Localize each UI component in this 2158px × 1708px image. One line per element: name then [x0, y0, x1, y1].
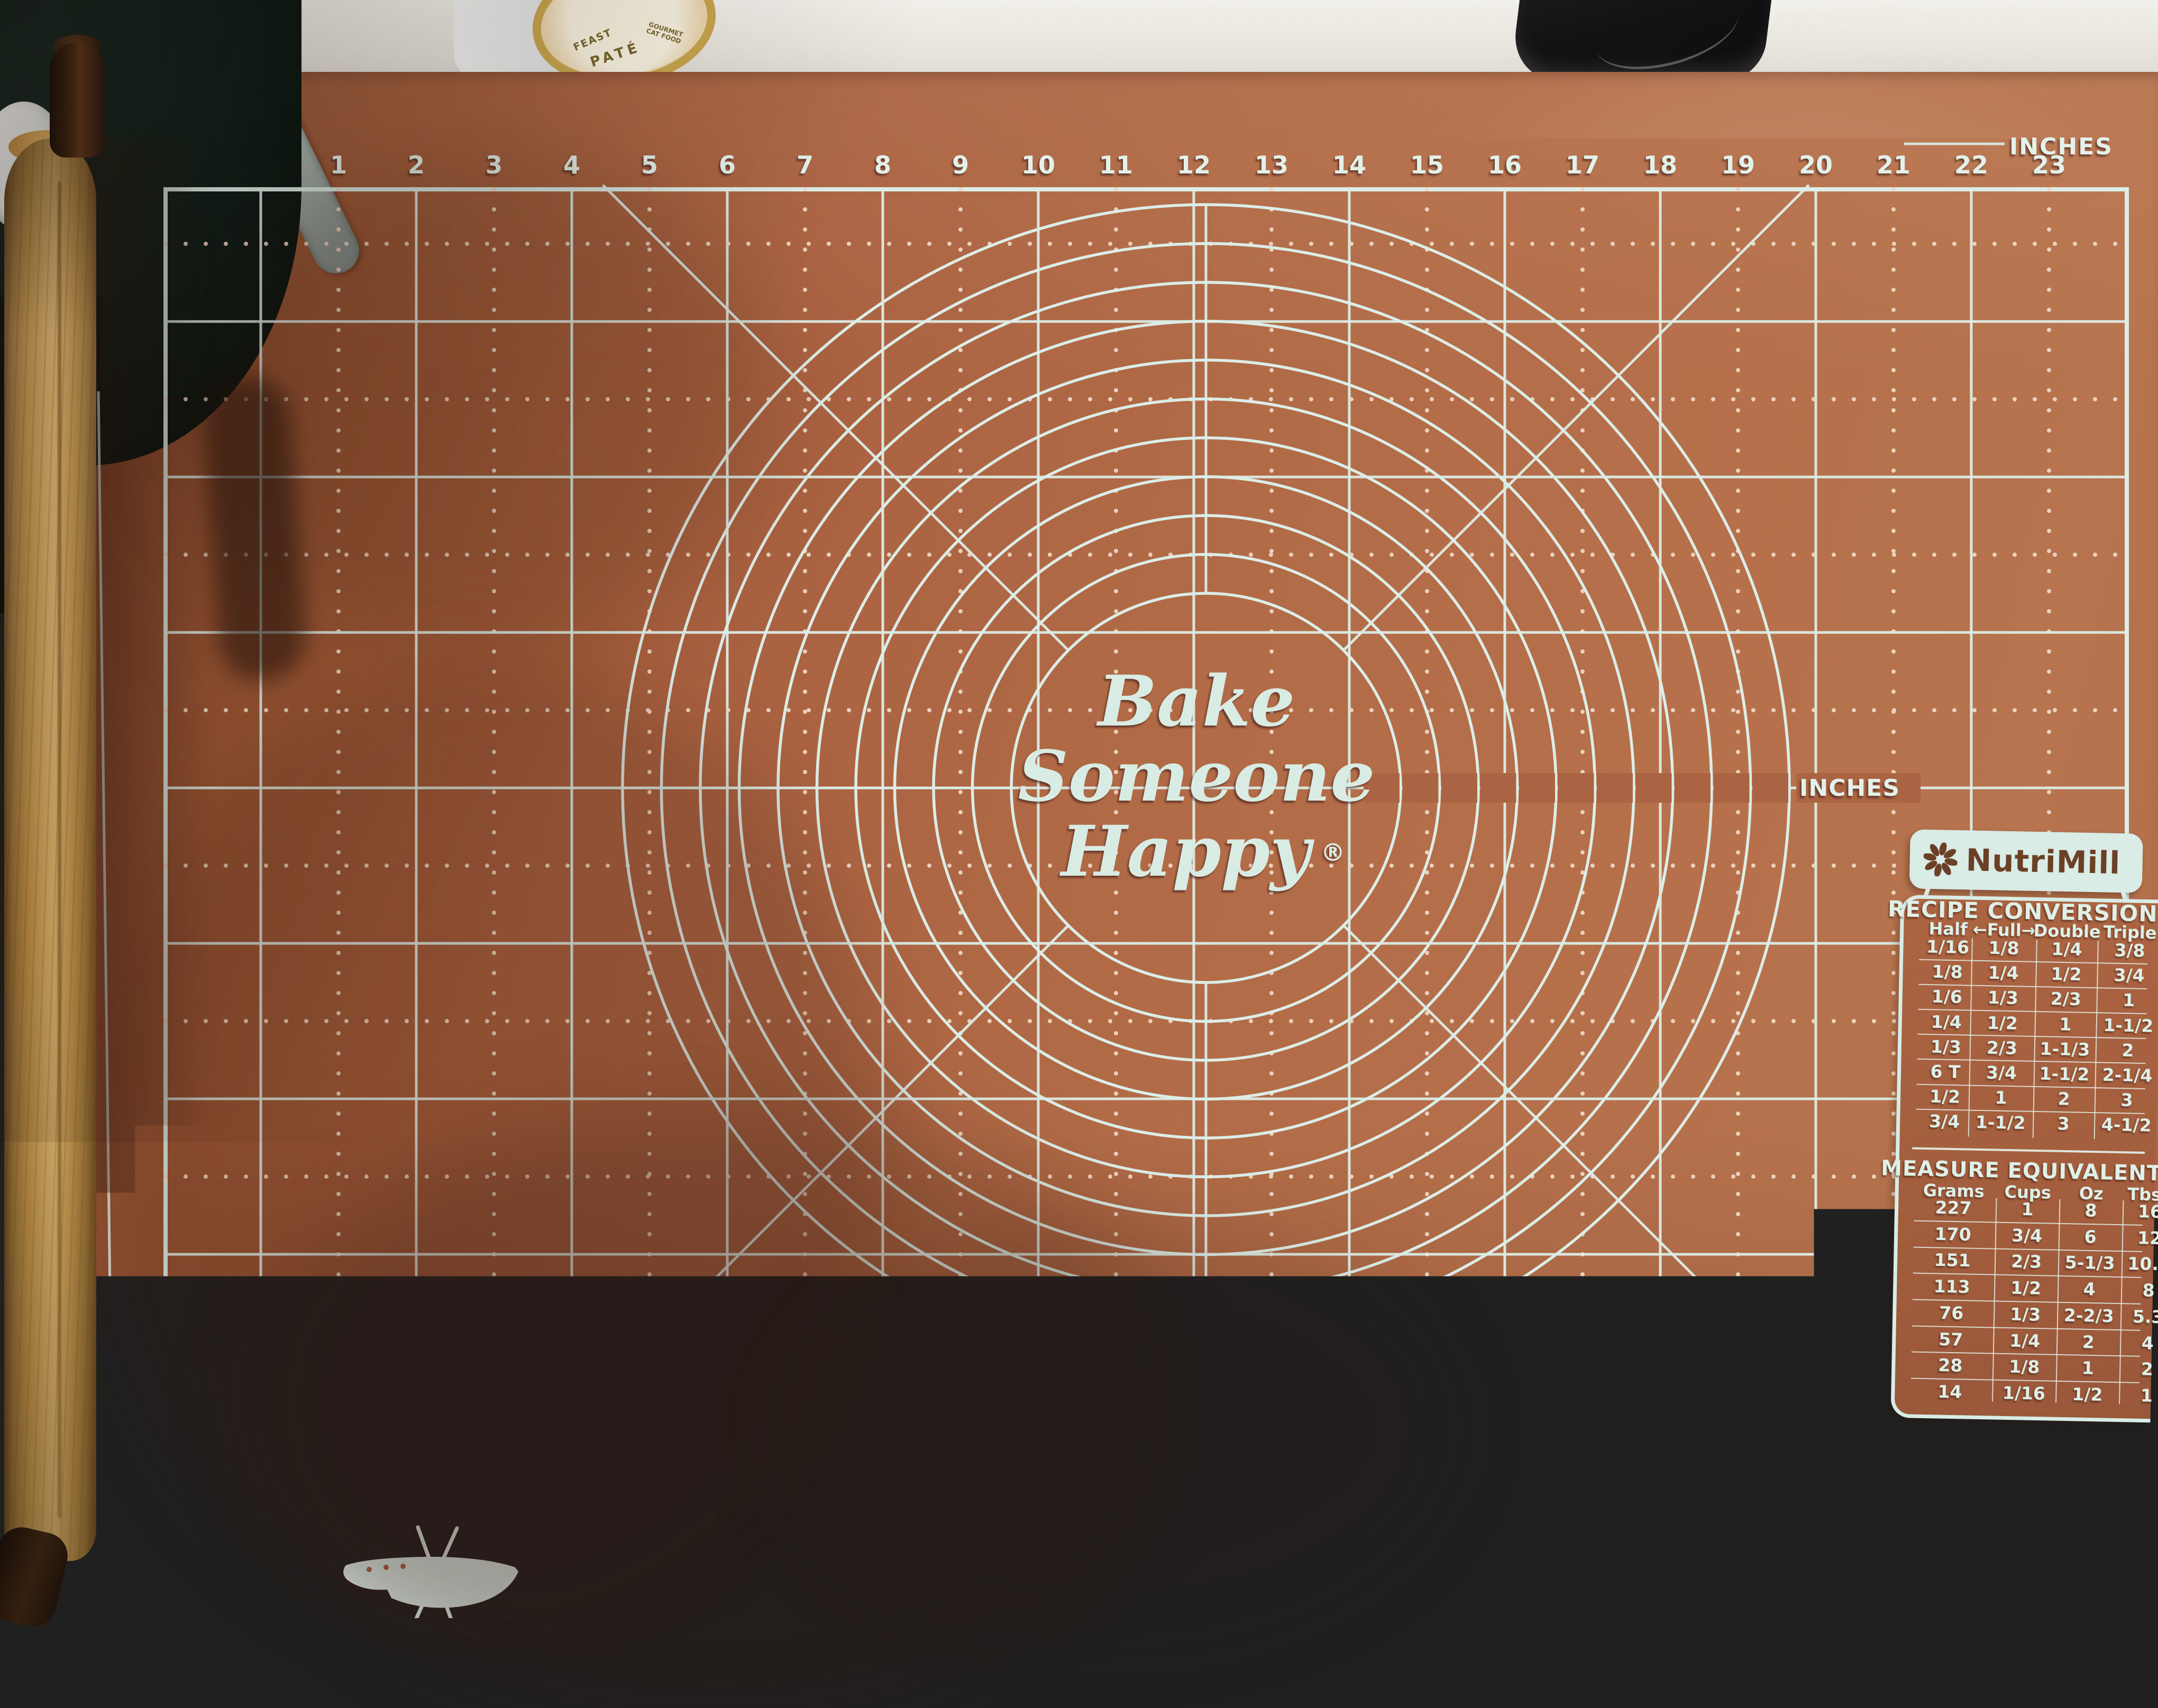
circle-diameter-number: 7	[1451, 775, 1468, 802]
top-ruler-number: 11	[1099, 151, 1133, 179]
bottom-ruler-number: 27	[1049, 1526, 1080, 1552]
me-cell: 1	[2141, 1385, 2153, 1406]
top-ruler-number: 17	[1566, 151, 1599, 179]
rc-cell: 1/2	[1987, 1012, 2018, 1033]
top-ruler-number: 23	[2032, 151, 2066, 179]
rc-cell: 2/3	[2050, 988, 2081, 1009]
me-cell: 8	[2142, 1280, 2155, 1300]
bottom-ruler-number: 37	[1401, 1526, 1431, 1552]
bottom-ruler-number: 40	[1506, 1526, 1537, 1552]
top-ruler-number: 3	[486, 151, 502, 179]
rc-cell: 1/4	[2051, 939, 2082, 960]
rc-column-divider	[2094, 941, 2099, 1139]
me-cell: 1	[2081, 1357, 2094, 1378]
me-cell: 151	[1934, 1250, 1971, 1271]
rc-cell: 1	[2123, 990, 2135, 1011]
top-ruler-number: 19	[1721, 151, 1755, 179]
rc-cell: 6 T	[1930, 1061, 1961, 1082]
bottom-ruler-number: 55	[2034, 1526, 2064, 1552]
me-cell: 57	[1938, 1329, 1963, 1350]
bottom-ruler-number: 23	[908, 1526, 939, 1552]
circle-diameter-number: 13	[1676, 775, 1708, 802]
bottom-ruler-number: 4	[248, 1526, 263, 1552]
bottom-ruler-number: 57	[2104, 1526, 2135, 1552]
bottom-ruler-number: 30	[1154, 1526, 1185, 1552]
me-cell: 1/3	[2010, 1303, 2041, 1325]
bottom-ruler-number: 9	[423, 1526, 438, 1552]
bottom-ruler-number: 56	[2069, 1526, 2099, 1552]
right-ruler-number: 1	[2141, 227, 2157, 254]
rc-cell: 1/3	[1987, 987, 2018, 1008]
circle-spoke	[603, 185, 1068, 650]
nutrimill-flower-icon	[1923, 842, 1958, 877]
me-cell: 4	[2083, 1279, 2096, 1299]
mat-slogan-line3: Happy	[1059, 811, 1315, 893]
wood-grain	[4, 139, 96, 1561]
bottom-ruler-number: 50	[1858, 1526, 1888, 1552]
top-ruler-number: 16	[1488, 151, 1522, 179]
circle-diameter-number: 8	[1490, 775, 1506, 802]
me-cell: 8	[2084, 1200, 2097, 1220]
rc-cell: 2/3	[1987, 1037, 2018, 1058]
rc-cell: 1/16	[1926, 936, 1970, 958]
bottom-ruler-number: 48	[1787, 1526, 1818, 1552]
bottom-ruler-number: 8	[388, 1526, 404, 1552]
top-ruler-number: 8	[874, 151, 891, 179]
bottom-ruler-number: 21	[838, 1526, 868, 1552]
rolling-pin-handle	[50, 42, 105, 158]
rc-cell: 1/4	[1988, 962, 2019, 984]
me-cell: 5-1/3	[2064, 1252, 2115, 1274]
me-cell: 2	[2082, 1331, 2095, 1352]
me-cell: 14	[1937, 1381, 1962, 1402]
rc-cell: 1	[2059, 1014, 2072, 1034]
bottom-ruler-number: 52	[1928, 1526, 1959, 1552]
me-cell: 4	[2141, 1333, 2154, 1353]
bottom-ruler-number: 43	[1612, 1526, 1642, 1552]
top-ruler-number: 21	[1877, 151, 1910, 179]
rolling-pin-shadow	[90, 140, 204, 1552]
rc-cell: 1/3	[1931, 1036, 1962, 1057]
me-cell: 2/3	[2011, 1251, 2042, 1272]
me-cell: 1/2	[2010, 1278, 2042, 1299]
bottom-ruler-number: 51	[1893, 1526, 1924, 1552]
top-ruler-number: 9	[952, 151, 969, 179]
rc-cell: 3/8	[2114, 940, 2145, 961]
bottom-ruler-number: 41	[1541, 1526, 1572, 1552]
top-ruler-number: 5	[641, 151, 658, 179]
bottom-ruler-number: 53	[1963, 1526, 1994, 1552]
circle-spoke	[603, 925, 1068, 1391]
me-cell: 2-2/3	[2064, 1305, 2114, 1326]
me-cell: 170	[1934, 1224, 1971, 1245]
bottom-ruler-number: 11	[486, 1526, 517, 1552]
bottom-ruler-number: 28	[1084, 1526, 1114, 1552]
rolling-pin-barrel	[4, 139, 96, 1561]
right-ruler-number: 2	[2141, 301, 2157, 328]
bottom-ruler-number: 19	[767, 1526, 798, 1552]
top-ruler-number: 4	[563, 151, 580, 179]
top-ruler-number: 12	[1177, 151, 1211, 179]
rc-cell: 1-1/2	[1976, 1112, 2026, 1134]
rc-cell: 1/2	[1930, 1086, 1961, 1107]
bottom-ruler-number: 22	[873, 1526, 903, 1552]
me-cell: 113	[1933, 1276, 1970, 1297]
me-cell: 1/2	[2072, 1384, 2103, 1405]
rc-cell: 3/4	[1986, 1062, 2017, 1083]
circle-spoke	[1343, 925, 1809, 1391]
circle-diameter-number: 14	[1715, 775, 1748, 802]
nutrimill-brand: NutriMill	[1965, 830, 2122, 893]
me-cell: 6	[2084, 1226, 2097, 1247]
top-ruler-number: 1	[330, 151, 347, 179]
rc-cell: 3	[2057, 1114, 2070, 1134]
bottom-ruler-number: 7	[353, 1526, 368, 1552]
me-cell: 28	[1938, 1355, 1963, 1376]
top-ruler-number: 7	[797, 151, 813, 179]
mat-print: Bake Someone Happy ® INCHES CENTIMETERS …	[0, 0, 2158, 1618]
conversions-panel: RECIPE CONVERSIONS MEASURE EQUIVALENTS H…	[1890, 895, 2158, 1422]
rc-cell: 1/2	[2051, 963, 2082, 985]
rc-cell: 3/4	[2114, 965, 2145, 986]
rc-column-divider	[1968, 939, 1973, 1137]
rc-cell: 3/4	[1929, 1111, 1960, 1132]
bottom-ruler-number: 35	[1330, 1526, 1361, 1552]
rc-cell: 1-1/3	[2040, 1038, 2090, 1060]
circle-diameter-number: 9	[1529, 775, 1546, 802]
section-divider	[1912, 1147, 2145, 1153]
mat-labels: Bake Someone Happy ® INCHES CENTIMETERS …	[50, 133, 2157, 1618]
me-column-divider	[1992, 1198, 1997, 1402]
me-cell: 1/8	[2009, 1356, 2040, 1378]
rc-cell: 1-1/2	[2039, 1063, 2089, 1085]
rc-cell: 2	[2122, 1040, 2134, 1060]
circle-diameter-number: 11	[1598, 775, 1631, 802]
circle-diameter-number: 12	[1638, 775, 1670, 802]
me-cell: 76	[1939, 1302, 1964, 1324]
mat-slogan-line1: Bake	[1096, 660, 1295, 742]
me-cell: 1	[2021, 1199, 2034, 1219]
bottom-ruler-number: 25	[979, 1526, 1009, 1552]
bottom-ruler-number: 44	[1647, 1526, 1677, 1552]
bottom-ruler-number: 24	[943, 1526, 974, 1552]
bottom-ruler-number: 18	[732, 1526, 763, 1552]
bottom-ruler-number: 10	[451, 1526, 481, 1552]
top-ruler-number: 15	[1410, 151, 1444, 179]
circle-diameter-number: 5	[1374, 775, 1390, 802]
bottom-ruler-number: 26	[1013, 1526, 1044, 1552]
me-cell: 1/16	[2002, 1382, 2046, 1404]
bottom-ruler-number: 5	[282, 1526, 298, 1552]
top-ruler-number: 6	[719, 151, 736, 179]
top-ruler-number: 20	[1799, 151, 1833, 179]
bottom-ruler-number: 31	[1190, 1526, 1220, 1552]
mat-slogan-line2: Someone	[1018, 736, 1375, 818]
bottom-ruler-number: 32	[1224, 1526, 1255, 1552]
bottom-ruler-number: 29	[1119, 1526, 1150, 1552]
bottom-ruler-number: 14	[591, 1526, 622, 1552]
top-ruler-number: 22	[1954, 151, 1988, 179]
bottom-ruler-number: 54	[1998, 1526, 2029, 1552]
bottom-ruler-number: 15	[627, 1526, 657, 1552]
bottom-ruler-number: 16	[662, 1526, 692, 1552]
me-cell: 5.3	[2133, 1306, 2158, 1327]
rc-cell: 1/4	[1931, 1011, 1962, 1032]
bottom-ruler-number: 17	[697, 1526, 728, 1552]
me-cell: 1/4	[2009, 1330, 2041, 1351]
me-cell: 2	[2141, 1359, 2153, 1380]
bottom-ruler-number: 45	[1682, 1526, 1713, 1552]
circle-diameter-number: 10	[1560, 775, 1592, 802]
rc-cell: 4-1/2	[2101, 1114, 2151, 1136]
circle-inches-label: INCHES	[1799, 775, 1900, 802]
bottom-ruler-number: 33	[1260, 1526, 1291, 1552]
rc-cell: 1	[1995, 1087, 2007, 1108]
me-cell: 3/4	[2011, 1225, 2043, 1246]
bottom-ruler-number: 3	[212, 1526, 227, 1552]
me-cell: 16	[2138, 1201, 2158, 1222]
rc-cell: 2	[2058, 1088, 2070, 1109]
bottom-ruler-number: 6	[318, 1526, 333, 1552]
circle-diameter-number: 15	[1754, 775, 1786, 802]
bottom-ruler-number: 20	[802, 1526, 833, 1552]
bottom-ruler-number: 42	[1576, 1526, 1607, 1552]
top-ruler-number: 13	[1255, 151, 1288, 179]
rc-cell: 2-1/4	[2102, 1064, 2152, 1086]
circle-spoke	[1343, 185, 1809, 650]
top-ruler-number: 14	[1332, 151, 1366, 179]
bottom-ruler-number: 36	[1365, 1526, 1396, 1552]
rc-cell: 1/8	[1988, 938, 2019, 959]
bottom-ruler-number: 47	[1752, 1526, 1783, 1552]
me-cell: 12	[2137, 1227, 2158, 1248]
bottom-ruler-number: 38	[1435, 1526, 1466, 1552]
rc-column-divider	[2033, 940, 2037, 1138]
me-cell: 10.6	[2127, 1253, 2158, 1275]
nutrimill-panel: NutriMill RECIPE CONVERSIONS MEASURE EQU…	[1890, 825, 2158, 1432]
wood-grain-streak	[58, 181, 61, 1519]
bottom-ruler-number: 49	[1823, 1526, 1853, 1552]
me-cell: 227	[1935, 1197, 1972, 1218]
bottom-ruler-number: 46	[1717, 1526, 1748, 1552]
registered-mark: ®	[1321, 838, 1345, 867]
top-ruler-number: 18	[1643, 151, 1677, 179]
me-column-divider	[2119, 1200, 2124, 1404]
circle-diameter-number: 6	[1412, 775, 1429, 802]
rc-cell: 1/8	[1932, 961, 1963, 982]
nutrimill-badge: NutriMill	[1909, 829, 2143, 893]
rc-cell: 1-1/2	[2103, 1014, 2153, 1036]
me-column-divider	[2055, 1199, 2060, 1403]
rc-cell: 3	[2120, 1090, 2133, 1110]
bottom-ruler-number: 34	[1295, 1526, 1325, 1552]
top-ruler-number: 10	[1021, 151, 1055, 179]
bottom-ruler-number: 12	[521, 1526, 552, 1552]
bottom-ruler-number: 39	[1471, 1526, 1502, 1552]
bottom-ruler-number: 13	[556, 1526, 587, 1552]
rc-cell: 1/6	[1931, 986, 1962, 1007]
top-ruler-number: 2	[408, 151, 425, 179]
right-ruler-number: 3	[2141, 375, 2157, 402]
